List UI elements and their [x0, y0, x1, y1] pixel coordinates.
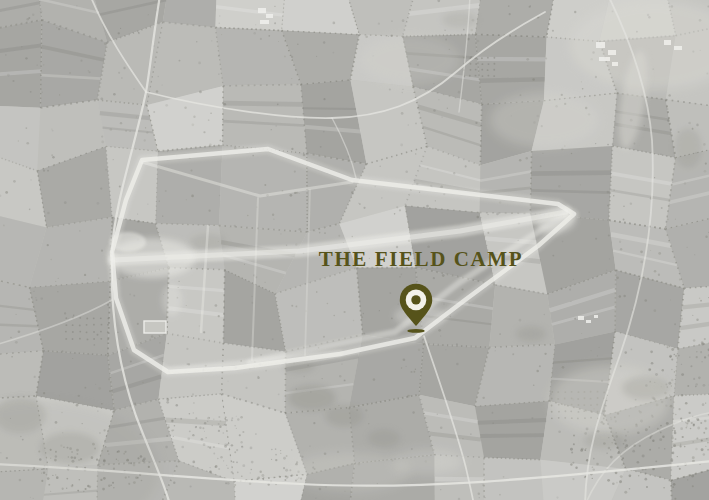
map-pin-icon [399, 283, 433, 334]
hero-image: THE FIELD CAMP [0, 0, 709, 500]
page-title: THE FIELD CAMP [319, 249, 523, 270]
map-pin-shadow [407, 329, 424, 333]
map-pin-dot [411, 295, 420, 304]
